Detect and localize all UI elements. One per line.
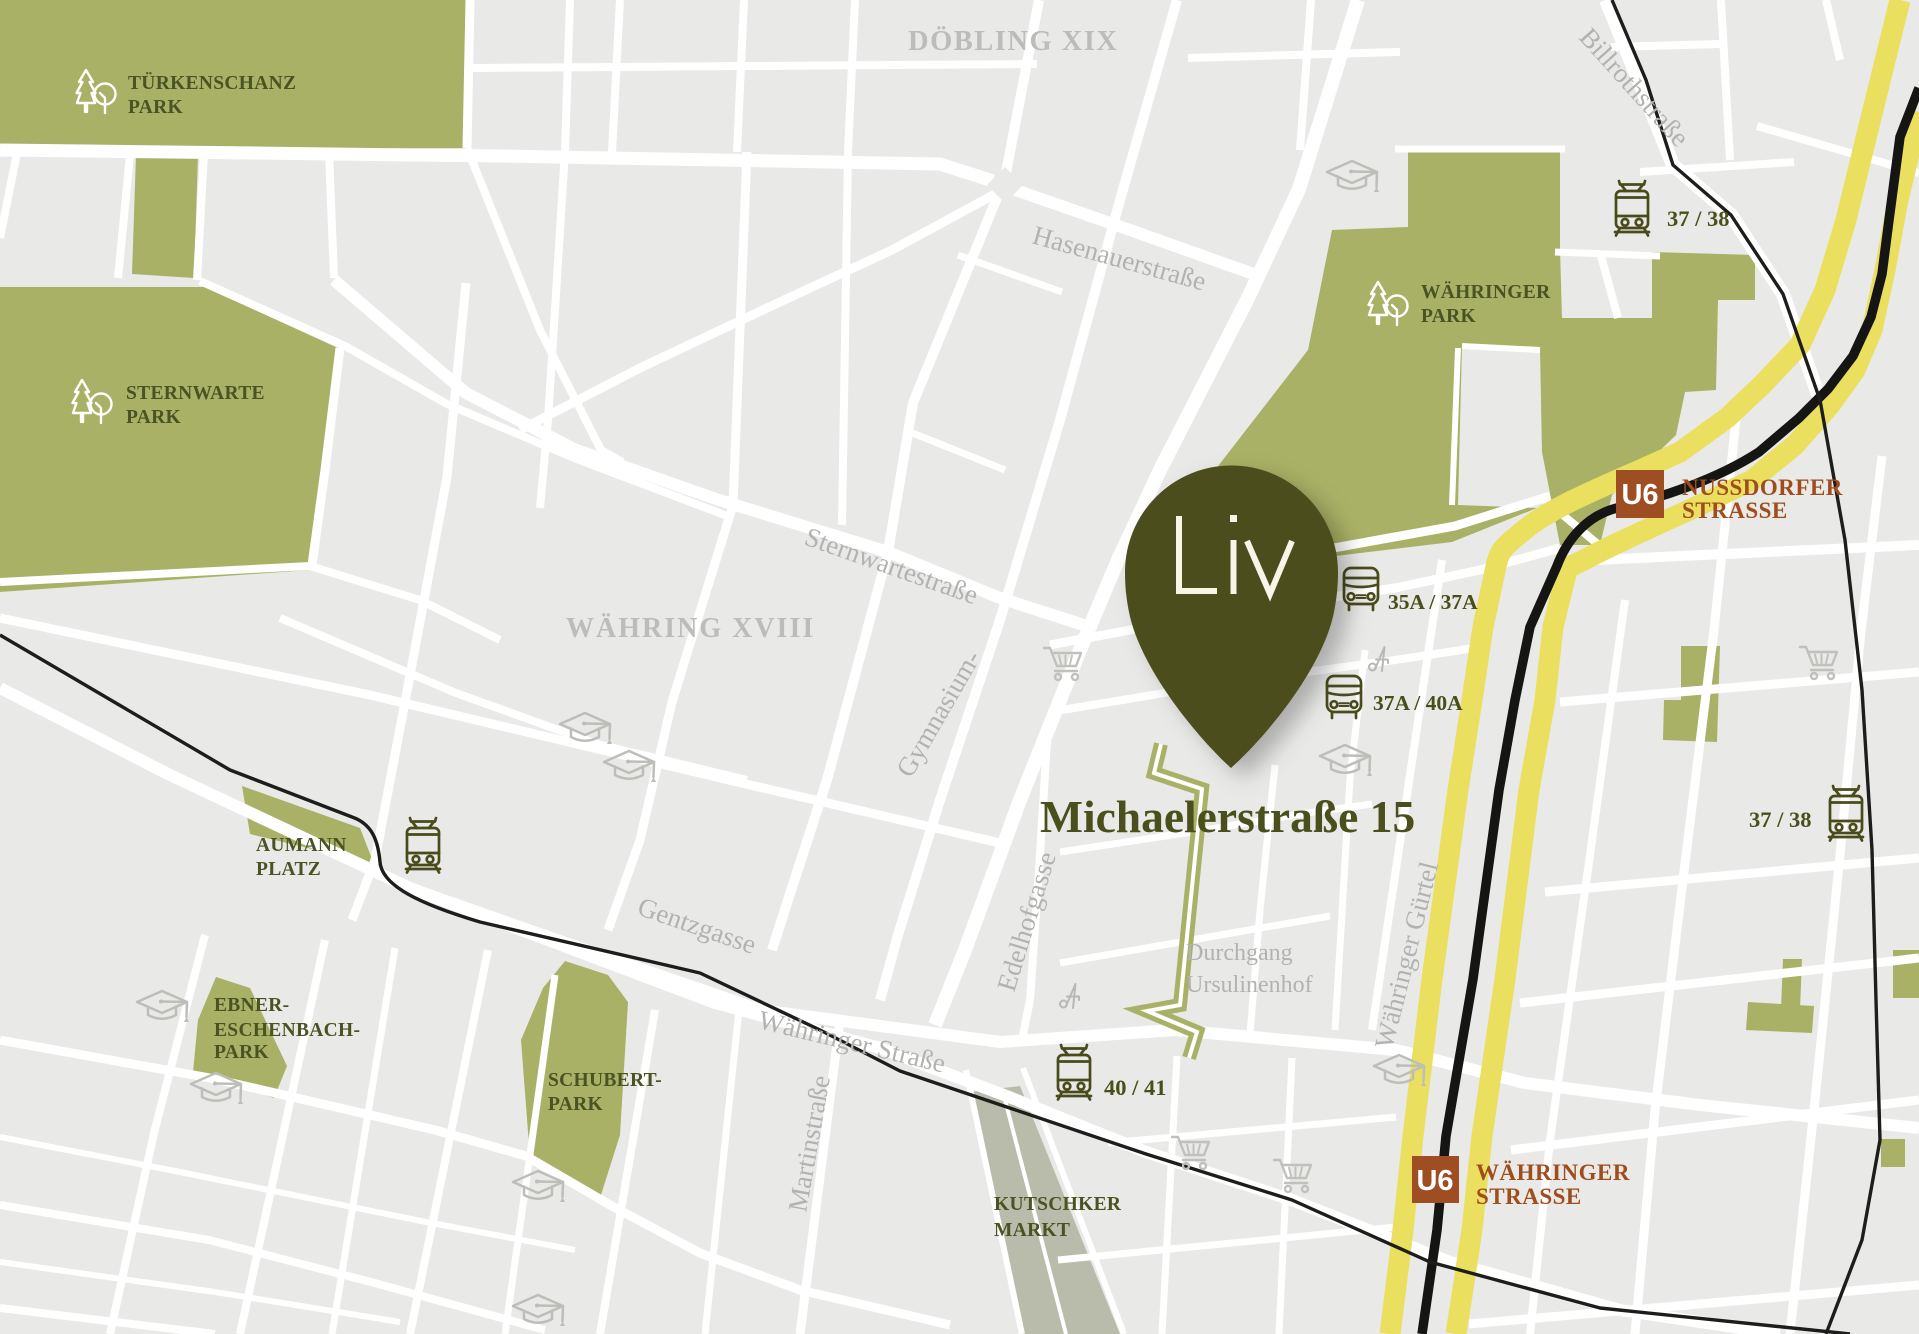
svg-text:KUTSCHKER: KUTSCHKER [994, 1194, 1122, 1215]
svg-text:PARK: PARK [1421, 306, 1477, 327]
svg-text:PARK: PARK [128, 97, 184, 118]
svg-text:MARKT: MARKT [994, 1220, 1070, 1241]
svg-text:37 / 38: 37 / 38 [1749, 807, 1812, 832]
svg-text:SCHUBERT-: SCHUBERT- [548, 1070, 662, 1091]
svg-text:37A / 40A: 37A / 40A [1373, 691, 1463, 715]
svg-text:AUMANN: AUMANN [256, 835, 347, 856]
svg-text:PARK: PARK [214, 1042, 270, 1063]
svg-text:WÄHRINGER: WÄHRINGER [1421, 282, 1551, 303]
svg-text:PARK: PARK [126, 407, 182, 428]
svg-text:ESCHENBACH-: ESCHENBACH- [214, 1020, 360, 1041]
svg-text:Ursulinenhof: Ursulinenhof [1186, 972, 1313, 998]
svg-text:40 / 41: 40 / 41 [1104, 1075, 1167, 1100]
svg-text:U6: U6 [1621, 479, 1658, 511]
svg-text:WÄHRING XVIII: WÄHRING XVIII [566, 613, 815, 644]
svg-text:PARK: PARK [548, 1094, 604, 1115]
svg-text:37 / 38: 37 / 38 [1667, 206, 1730, 231]
svg-text:PLATZ: PLATZ [256, 859, 321, 880]
svg-text:STRASSE: STRASSE [1476, 1184, 1582, 1209]
svg-text:STRASSE: STRASSE [1682, 498, 1788, 523]
svg-text:EBNER-: EBNER- [214, 995, 289, 1016]
svg-text:DÖBLING XIX: DÖBLING XIX [908, 25, 1119, 57]
svg-text:STERNWARTE: STERNWARTE [126, 383, 265, 404]
svg-text:TÜRKENSCHANZ: TÜRKENSCHANZ [128, 73, 296, 94]
svg-text:Durchgang: Durchgang [1186, 940, 1293, 966]
svg-text:U6: U6 [1416, 1165, 1453, 1197]
svg-text:35A / 37A: 35A / 37A [1388, 590, 1478, 614]
svg-text:Michaelerstraße 15: Michaelerstraße 15 [1040, 791, 1415, 842]
svg-text:NUSSDORFER: NUSSDORFER [1682, 475, 1843, 500]
svg-text:WÄHRINGER: WÄHRINGER [1476, 1160, 1630, 1185]
